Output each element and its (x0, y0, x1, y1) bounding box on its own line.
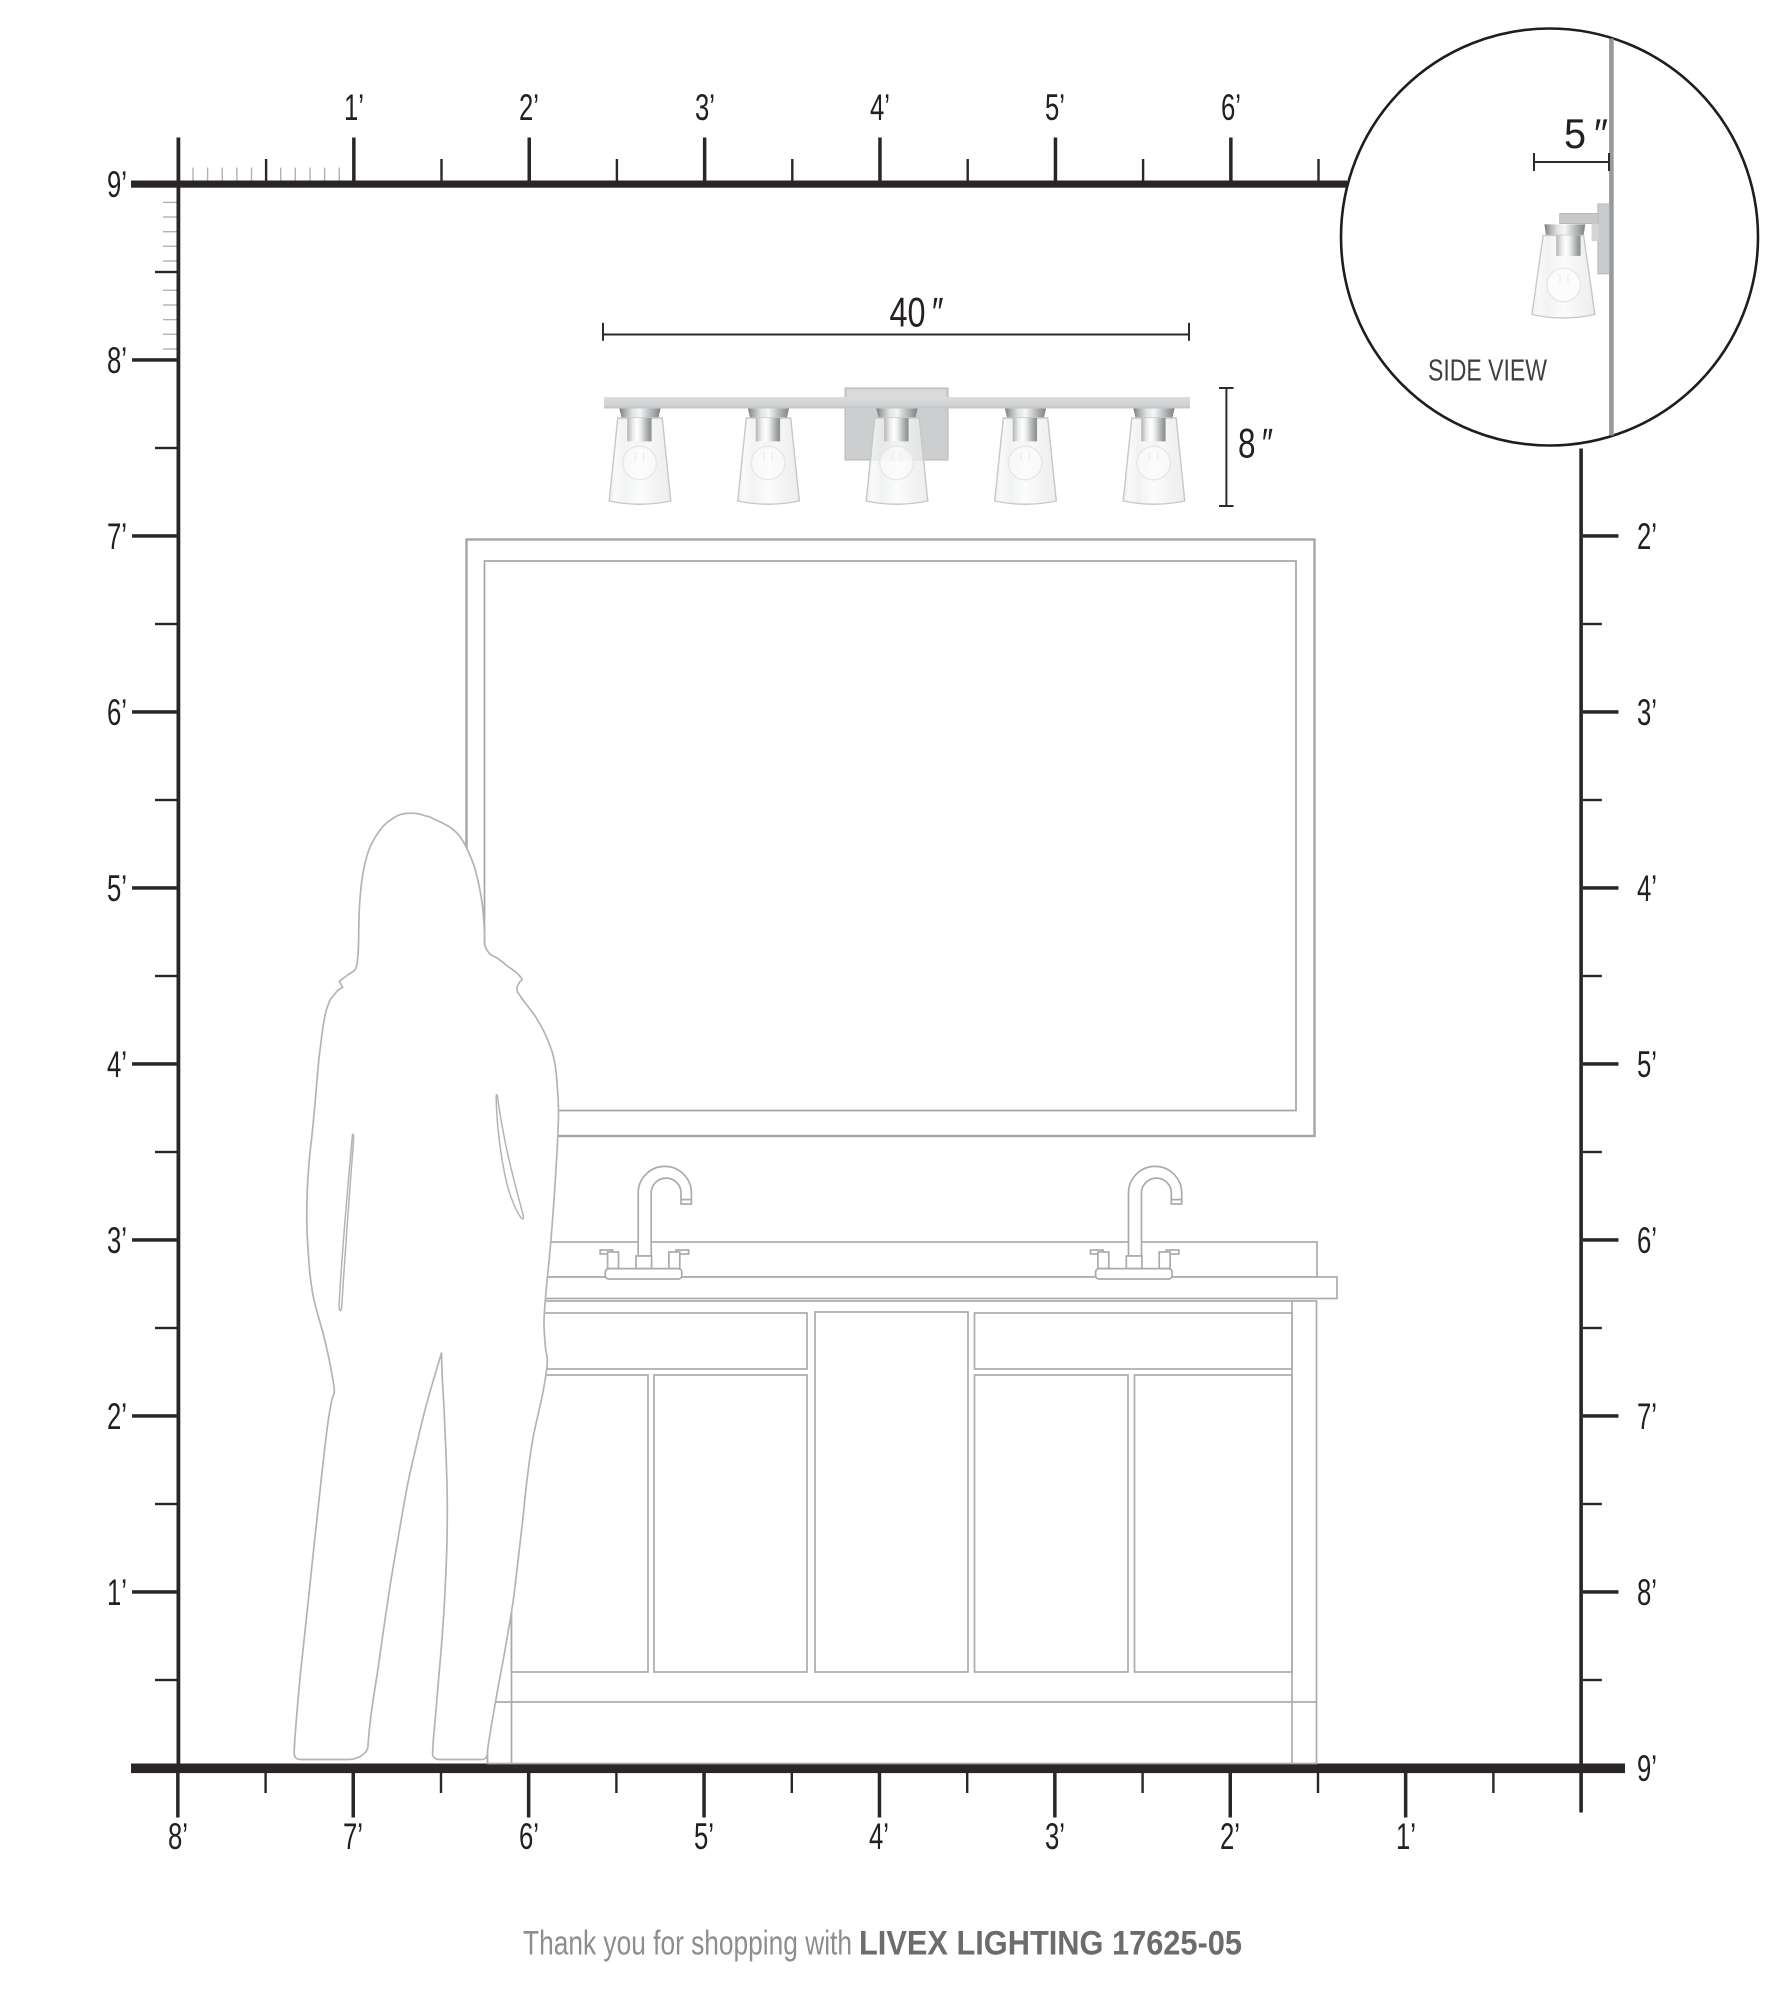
svg-text:7’: 7’ (343, 1816, 363, 1857)
svg-text:5’: 5’ (107, 868, 127, 909)
svg-text:6’: 6’ (1637, 1220, 1657, 1261)
svg-text:SIDE VIEW: SIDE VIEW (1428, 353, 1548, 388)
svg-text:6’: 6’ (107, 692, 127, 733)
svg-text:2’: 2’ (107, 1396, 127, 1437)
svg-text:4’: 4’ (107, 1044, 127, 1085)
svg-text:3’: 3’ (1045, 1816, 1065, 1857)
svg-text:1’: 1’ (344, 87, 364, 128)
svg-text:5 ″: 5 ″ (1564, 110, 1608, 157)
svg-text:40 ″: 40 ″ (890, 289, 944, 336)
svg-text:2’: 2’ (1637, 516, 1657, 557)
svg-text:8’: 8’ (1637, 1572, 1657, 1613)
svg-text:2’: 2’ (1220, 1816, 1240, 1857)
svg-text:Thank you for shopping with: Thank you for shopping with (523, 1925, 852, 1963)
svg-text:3’: 3’ (107, 1220, 127, 1261)
svg-text:8’: 8’ (107, 340, 127, 381)
svg-text:7’: 7’ (107, 516, 127, 557)
svg-text:9’: 9’ (107, 164, 127, 205)
svg-text:4’: 4’ (870, 87, 890, 128)
svg-text:4’: 4’ (1637, 868, 1657, 909)
svg-text:8 ″: 8 ″ (1238, 420, 1273, 467)
svg-text:6’: 6’ (519, 1816, 539, 1857)
svg-text:5’: 5’ (1045, 87, 1065, 128)
svg-text:9’: 9’ (1637, 1748, 1657, 1789)
svg-text:5’: 5’ (694, 1816, 714, 1857)
svg-text:6’: 6’ (1221, 87, 1241, 128)
svg-text:LIVEX LIGHTING 17625-05: LIVEX LIGHTING 17625-05 (859, 1925, 1242, 1963)
svg-text:2’: 2’ (519, 87, 539, 128)
svg-text:7’: 7’ (1637, 1396, 1657, 1437)
svg-text:1’: 1’ (1396, 1816, 1416, 1857)
svg-text:4’: 4’ (869, 1816, 889, 1857)
svg-text:1’: 1’ (107, 1572, 127, 1613)
svg-text:3’: 3’ (695, 87, 715, 128)
svg-text:3’: 3’ (1637, 692, 1657, 733)
svg-text:5’: 5’ (1637, 1044, 1657, 1085)
svg-text:8’: 8’ (168, 1816, 188, 1857)
